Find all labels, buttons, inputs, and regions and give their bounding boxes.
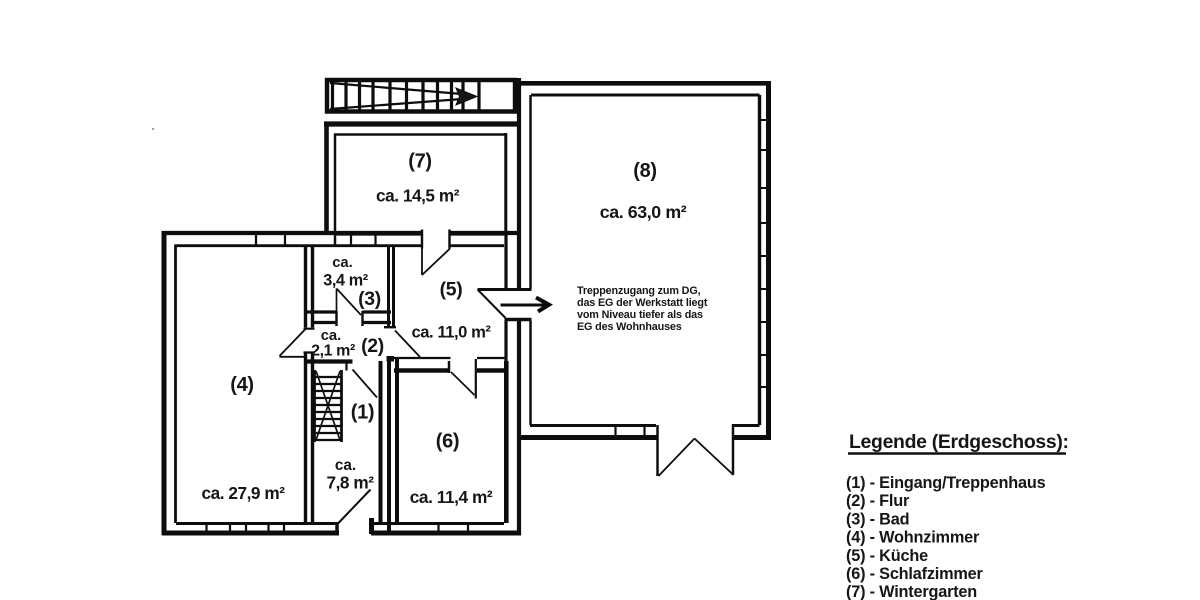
svg-text:ca.: ca. xyxy=(335,457,356,474)
svg-text:(4) - Wohnzimmer: (4) - Wohnzimmer xyxy=(846,529,980,547)
svg-text:ca. 11,0 m²: ca. 11,0 m² xyxy=(412,322,492,341)
svg-text:(6) - Schlafzimmer: (6) - Schlafzimmer xyxy=(846,565,983,583)
svg-text:(8): (8) xyxy=(633,160,657,182)
svg-text:(7): (7) xyxy=(408,151,432,173)
svg-text:ca. 14,5 m²: ca. 14,5 m² xyxy=(376,186,460,206)
svg-text:(1) - Eingang/Treppenhaus: (1) - Eingang/Treppenhaus xyxy=(846,474,1046,492)
svg-text:(4): (4) xyxy=(230,374,254,396)
svg-text:ca. 27,9 m²: ca. 27,9 m² xyxy=(202,483,286,503)
svg-text:(5): (5) xyxy=(440,279,463,301)
svg-text:(7) - Wintergarten: (7) - Wintergarten xyxy=(846,583,977,600)
svg-text:2,1 m²: 2,1 m² xyxy=(311,343,355,360)
svg-text:ca.: ca. xyxy=(332,255,353,271)
svg-text:(3): (3) xyxy=(358,288,381,310)
svg-text:(2): (2) xyxy=(361,335,384,357)
svg-text:(2) - Flur: (2) - Flur xyxy=(846,492,910,510)
svg-text:vom Niveau tiefer als das: vom Niveau tiefer als das xyxy=(577,309,703,321)
svg-text:ca. 11,4 m²: ca. 11,4 m² xyxy=(410,487,493,507)
svg-text:(5) - Küche: (5) - Küche xyxy=(846,547,928,565)
svg-text:3,4 m²: 3,4 m² xyxy=(323,272,368,290)
svg-text:(6): (6) xyxy=(436,431,460,453)
svg-text:(1): (1) xyxy=(351,402,375,424)
svg-text:das EG der Werkstatt liegt: das EG der Werkstatt liegt xyxy=(577,297,708,309)
svg-text:ca. 63,0 m²: ca. 63,0 m² xyxy=(600,202,687,222)
svg-text:(3) - Bad: (3) - Bad xyxy=(846,510,909,528)
svg-text:Legende (Erdgeschoss):: Legende (Erdgeschoss): xyxy=(849,431,1069,453)
svg-text:Treppenzugang zum DG,: Treppenzugang zum DG, xyxy=(577,285,701,297)
svg-text:EG des Wohnhauses: EG des Wohnhauses xyxy=(577,321,682,333)
svg-text:7,8 m²: 7,8 m² xyxy=(327,473,375,493)
